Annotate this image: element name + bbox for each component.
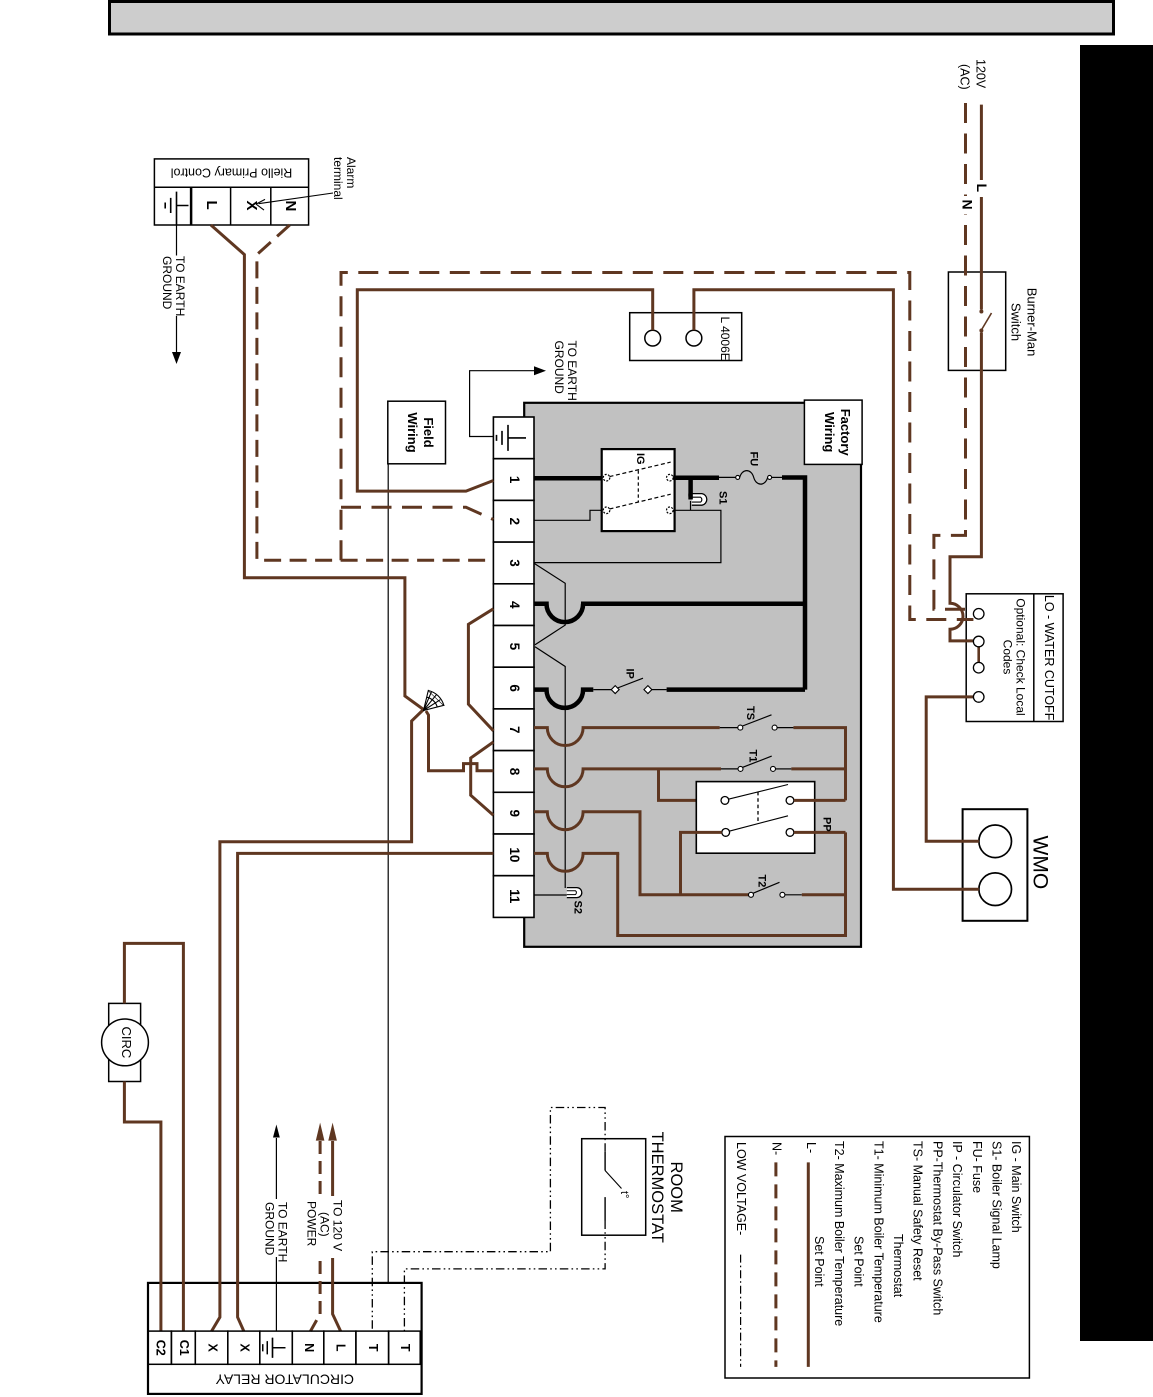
svg-text:TO EARTH: TO EARTH <box>173 256 187 316</box>
svg-text:Thermostat: Thermostat <box>891 1234 905 1298</box>
svg-text:L: L <box>203 201 220 210</box>
svg-text:N-: N- <box>770 1142 784 1155</box>
svg-text:terminal: terminal <box>331 157 345 200</box>
svg-text:PP: PP <box>821 817 833 832</box>
svg-text:TO 120 V: TO 120 V <box>331 1200 345 1251</box>
svg-text:Alarm: Alarm <box>344 157 358 188</box>
svg-text:Wiring: Wiring <box>822 412 837 452</box>
svg-text:9: 9 <box>507 809 522 817</box>
svg-text:T1- Minimum Boiler Temperature: T1- Minimum Boiler Temperature <box>871 1141 885 1323</box>
svg-text:Wiring: Wiring <box>405 412 420 452</box>
svg-text:IP: IP <box>624 669 636 679</box>
svg-text:LOW VOLTAGE-: LOW VOLTAGE- <box>734 1142 748 1235</box>
svg-text:X: X <box>238 1344 252 1353</box>
svg-text:TS- Manual Safety Reset: TS- Manual Safety Reset <box>911 1141 925 1281</box>
svg-text:Factory: Factory <box>838 409 853 457</box>
svg-text:S2: S2 <box>572 901 584 914</box>
svg-text:GROUND: GROUND <box>263 1202 277 1256</box>
svg-text:4: 4 <box>507 601 522 609</box>
svg-text:(AC): (AC) <box>958 64 972 90</box>
svg-text:2: 2 <box>507 518 522 526</box>
svg-text:T2: T2 <box>756 875 768 888</box>
svg-text:Set Point: Set Point <box>852 1236 866 1287</box>
svg-text:Field: Field <box>421 417 436 447</box>
svg-text:TO EARTH: TO EARTH <box>276 1202 290 1262</box>
svg-text:S1: S1 <box>717 491 729 504</box>
svg-text:LO - WATER CUTOFF: LO - WATER CUTOFF <box>1042 595 1056 721</box>
svg-text:IP - Circulator Switch: IP - Circulator Switch <box>950 1141 964 1258</box>
svg-text:CIRC: CIRC <box>119 1027 134 1059</box>
svg-text:POWER: POWER <box>305 1201 319 1247</box>
svg-text:TS: TS <box>744 706 756 720</box>
svg-text:GROUND: GROUND <box>552 341 566 395</box>
svg-text:N: N <box>302 1343 316 1352</box>
svg-text:L: L <box>974 184 990 193</box>
svg-text:11: 11 <box>507 889 522 904</box>
svg-text:L: L <box>334 1344 348 1352</box>
svg-text:X: X <box>205 1344 219 1353</box>
svg-text:ROOM: ROOM <box>667 1162 685 1213</box>
svg-text:N: N <box>960 200 976 210</box>
svg-text:Burner-Man: Burner-Man <box>1025 288 1040 357</box>
svg-text:Switch: Switch <box>1009 303 1024 341</box>
svg-text:Riello Primary Control: Riello Primary Control <box>171 166 293 180</box>
svg-text:Codes: Codes <box>1001 640 1015 675</box>
svg-text:C1: C1 <box>177 1340 191 1356</box>
svg-text:PP-Thermostat By-Pass Switch: PP-Thermostat By-Pass Switch <box>930 1141 944 1315</box>
svg-text:3: 3 <box>507 559 522 567</box>
svg-text:1: 1 <box>507 476 522 484</box>
svg-text:L-: L- <box>804 1142 818 1153</box>
svg-text:THERMOSTAT: THERMOSTAT <box>648 1132 666 1243</box>
svg-text:T: T <box>366 1344 380 1352</box>
svg-text:S1- Boiler Signal Lamp: S1- Boiler Signal Lamp <box>990 1141 1004 1269</box>
svg-text:FU: FU <box>748 452 760 467</box>
svg-text:(AC): (AC) <box>318 1212 332 1237</box>
svg-text:T: T <box>398 1344 412 1352</box>
svg-text:IG: IG <box>634 453 646 465</box>
svg-text:5: 5 <box>507 643 522 651</box>
svg-text:T1: T1 <box>747 750 759 763</box>
svg-text:Set Point: Set Point <box>812 1236 826 1287</box>
svg-text:WMO: WMO <box>1029 836 1052 890</box>
svg-text:L 4006E: L 4006E <box>718 317 732 361</box>
svg-text:T2- Maximum Boiler Temperature: T2- Maximum Boiler Temperature <box>832 1141 846 1326</box>
svg-text:C2: C2 <box>153 1340 167 1356</box>
svg-text:6: 6 <box>507 684 522 692</box>
svg-text:N: N <box>282 201 299 212</box>
svg-text:t°: t° <box>618 1191 630 1198</box>
svg-text:FU- Fuse: FU- Fuse <box>970 1141 984 1193</box>
svg-text:IG - Main Switch: IG - Main Switch <box>1009 1141 1023 1233</box>
svg-text:120V: 120V <box>974 59 988 89</box>
svg-text:7: 7 <box>507 726 522 734</box>
svg-text:CIRCULATOR RELAY: CIRCULATOR RELAY <box>215 1372 354 1388</box>
svg-text:Optional: Check Local: Optional: Check Local <box>1014 598 1028 715</box>
svg-text:10: 10 <box>507 847 522 862</box>
svg-text:GROUND: GROUND <box>160 256 174 310</box>
svg-text:TO EARTH: TO EARTH <box>565 341 579 401</box>
svg-text:8: 8 <box>507 768 522 776</box>
